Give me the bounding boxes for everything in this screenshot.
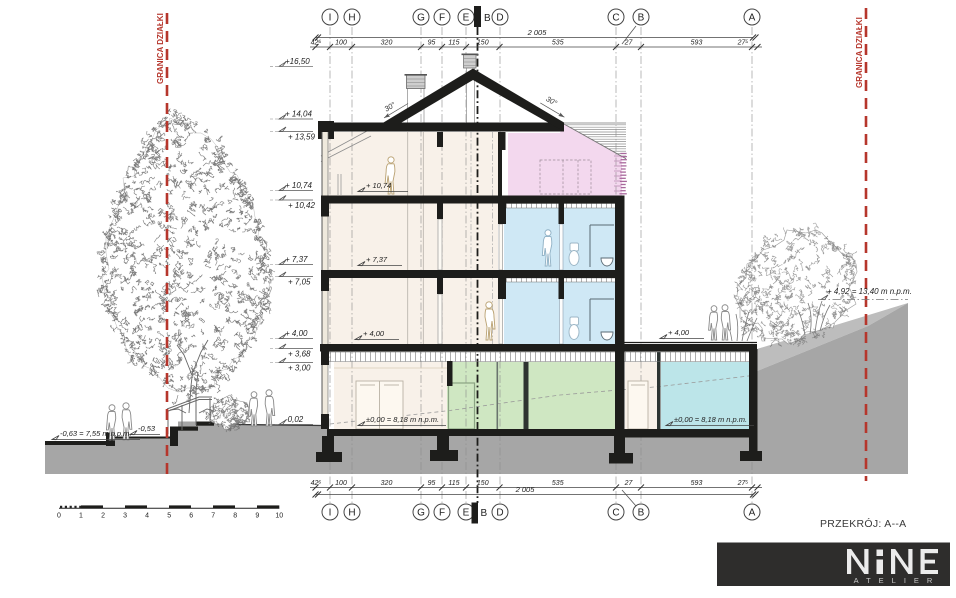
svg-text:+ 3,00: + 3,00: [288, 364, 311, 373]
svg-text:2 005: 2 005: [515, 485, 536, 494]
svg-text:+ 4,92 = 13,40 m n.p.m.: + 4,92 = 13,40 m n.p.m.: [827, 287, 912, 296]
svg-text:27⁵: 27⁵: [737, 40, 749, 47]
svg-text:-0,02: -0,02: [285, 415, 304, 424]
svg-text:115: 115: [448, 40, 459, 47]
svg-text:G: G: [417, 508, 425, 519]
svg-text:7: 7: [211, 513, 215, 520]
svg-text:F: F: [439, 508, 445, 519]
svg-text:GRANICA DZIAŁKI: GRANICA DZIAŁKI: [156, 13, 165, 84]
svg-text:D: D: [496, 13, 503, 24]
svg-text:1: 1: [79, 513, 83, 520]
svg-text:A: A: [749, 13, 756, 24]
svg-text:PRZEKRÓJ: A--A: PRZEKRÓJ: A--A: [820, 517, 906, 530]
svg-text:D: D: [496, 508, 503, 519]
svg-text:+ 7,37: + 7,37: [366, 255, 388, 264]
svg-text:+ 7,05: + 7,05: [288, 278, 311, 287]
svg-text:B: B: [638, 13, 645, 24]
svg-text:27: 27: [624, 40, 634, 47]
svg-text:+ 3,68: + 3,68: [288, 350, 311, 359]
svg-text:+ 4,00: + 4,00: [363, 329, 385, 338]
svg-text:10: 10: [275, 513, 283, 520]
svg-text:H: H: [348, 508, 355, 519]
svg-text:593: 593: [691, 40, 703, 47]
svg-text:593: 593: [691, 480, 703, 487]
svg-text:ATELIER: ATELIER: [854, 576, 941, 585]
svg-text:GRANICA DZIAŁKI: GRANICA DZIAŁKI: [855, 17, 864, 88]
svg-text:95: 95: [428, 480, 436, 487]
svg-text:2 005: 2 005: [527, 28, 548, 37]
svg-text:B: B: [484, 13, 491, 24]
svg-text:27: 27: [624, 480, 634, 487]
svg-text:I: I: [329, 13, 332, 24]
svg-text:115: 115: [448, 480, 459, 487]
svg-text:42⁶: 42⁶: [311, 480, 322, 487]
svg-text:B: B: [638, 508, 645, 519]
svg-text:6: 6: [189, 513, 193, 520]
svg-text:+ 10,74: + 10,74: [366, 181, 391, 190]
svg-text:E: E: [463, 13, 470, 24]
svg-text:F: F: [439, 13, 445, 24]
svg-text:+ 4,00: + 4,00: [668, 328, 690, 337]
svg-text:9: 9: [255, 513, 259, 520]
svg-text:I: I: [329, 508, 332, 519]
svg-text:5: 5: [167, 513, 171, 520]
svg-text:E: E: [463, 508, 470, 519]
svg-text:535: 535: [552, 480, 564, 487]
svg-text:150: 150: [477, 480, 489, 487]
svg-text:3: 3: [123, 513, 127, 520]
svg-text:B: B: [481, 508, 488, 519]
svg-text:100: 100: [335, 40, 347, 47]
svg-text:535: 535: [552, 40, 564, 47]
svg-text:C: C: [612, 13, 619, 24]
svg-text:95: 95: [428, 40, 436, 47]
svg-text:8: 8: [233, 513, 237, 520]
svg-text:+ 10,42: + 10,42: [288, 201, 315, 210]
svg-text:H: H: [348, 13, 355, 24]
svg-text:±0,00 = 8,18 m n.p.m.: ±0,00 = 8,18 m n.p.m.: [674, 415, 747, 424]
svg-text:G: G: [417, 13, 425, 24]
svg-text:+ 7,37: + 7,37: [285, 255, 308, 264]
svg-text:0: 0: [57, 513, 61, 520]
svg-text:C: C: [612, 508, 619, 519]
svg-text:2: 2: [101, 513, 105, 520]
svg-text:30°: 30°: [544, 94, 558, 108]
svg-text:27⁵: 27⁵: [737, 480, 749, 487]
svg-text:42⁶: 42⁶: [311, 40, 322, 47]
svg-text:-0,63 = 7,55 m n.p.m.: -0,63 = 7,55 m n.p.m.: [60, 429, 132, 438]
svg-text:-0,53: -0,53: [138, 424, 156, 433]
svg-text:320: 320: [381, 480, 393, 487]
svg-text:A: A: [749, 508, 756, 519]
svg-text:4: 4: [145, 513, 149, 520]
svg-text:+ 14,04: + 14,04: [285, 110, 312, 119]
svg-text:100: 100: [335, 480, 347, 487]
svg-text:+ 10,74: + 10,74: [285, 181, 312, 190]
svg-text:+ 4,00: + 4,00: [285, 329, 308, 338]
svg-text:±0,00 = 8,18 m n.p.m.: ±0,00 = 8,18 m n.p.m.: [366, 415, 439, 424]
svg-text:+16,50: +16,50: [285, 57, 310, 66]
svg-text:+ 13,59: + 13,59: [288, 133, 315, 142]
svg-text:150: 150: [477, 40, 489, 47]
svg-text:320: 320: [381, 40, 393, 47]
